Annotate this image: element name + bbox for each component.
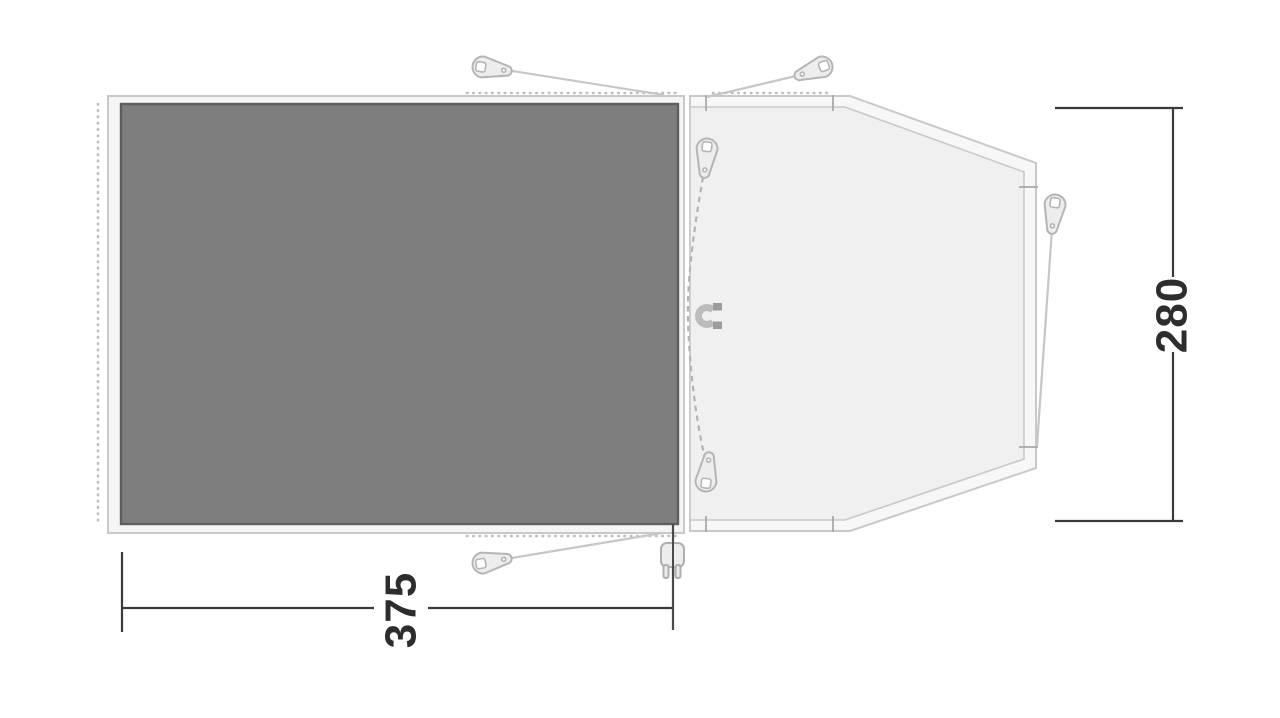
- width-dimension-label: 375: [377, 572, 426, 648]
- guy-rope: [1037, 229, 1052, 446]
- depth-dimension-label: 280: [1148, 277, 1197, 353]
- tent-peg-icon: [471, 55, 513, 82]
- tent-peg-icon: [791, 54, 835, 87]
- plug-prong: [664, 565, 669, 578]
- plug-prong: [676, 565, 681, 578]
- tent-peg-icon: [471, 548, 514, 576]
- guy-rope: [707, 75, 800, 97]
- power-cable-entry-icon: [661, 524, 684, 630]
- guy-rope: [506, 70, 664, 95]
- depth-dimension: 280: [1055, 108, 1197, 521]
- tent-peg-icon: [1041, 193, 1067, 235]
- porch-inner-outline: [690, 107, 1024, 520]
- width-dimension: 375: [122, 524, 673, 648]
- magnet-pole-tip: [713, 322, 722, 330]
- floorplan-page: 375 280: [0, 0, 1280, 718]
- magnet-pole-tip: [713, 303, 722, 311]
- floorplan-diagram: 375 280: [0, 0, 1280, 718]
- inner-tent-area: [121, 104, 678, 524]
